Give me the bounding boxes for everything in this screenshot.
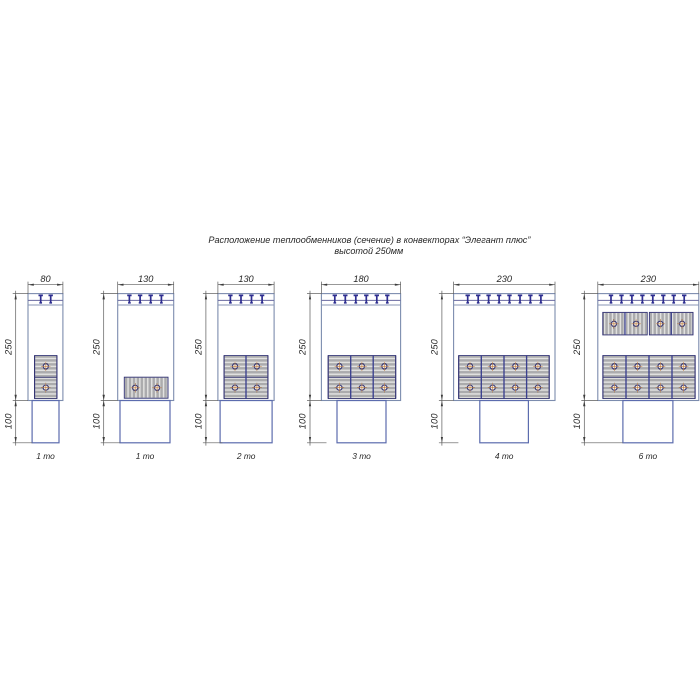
svg-text:высотой 250мм: высотой 250мм — [334, 246, 404, 256]
svg-text:230: 230 — [640, 274, 657, 284]
svg-text:100: 100 — [194, 413, 204, 430]
svg-text:100: 100 — [91, 413, 101, 430]
svg-text:250: 250 — [430, 338, 440, 356]
svg-text:230: 230 — [496, 274, 513, 284]
svg-text:100: 100 — [3, 413, 13, 430]
svg-text:100: 100 — [572, 413, 582, 430]
svg-text:250: 250 — [194, 338, 204, 356]
svg-text:1 то: 1 то — [36, 451, 55, 461]
svg-text:250: 250 — [572, 338, 582, 356]
svg-text:250: 250 — [298, 338, 308, 356]
svg-text:2 то: 2 то — [236, 451, 256, 461]
svg-text:1 то: 1 то — [136, 451, 155, 461]
svg-text:80: 80 — [40, 274, 51, 284]
svg-text:130: 130 — [138, 274, 154, 284]
svg-text:100: 100 — [298, 413, 308, 430]
svg-text:Расположение теплообменников (: Расположение теплообменников (сечение) в… — [208, 235, 531, 245]
svg-text:250: 250 — [3, 338, 13, 356]
svg-text:250: 250 — [91, 338, 101, 356]
svg-text:4 то: 4 то — [495, 451, 514, 461]
svg-text:6 то: 6 то — [639, 451, 658, 461]
svg-text:3 то: 3 то — [352, 451, 371, 461]
svg-text:180: 180 — [353, 274, 369, 284]
svg-text:100: 100 — [430, 413, 440, 430]
svg-text:130: 130 — [238, 274, 254, 284]
